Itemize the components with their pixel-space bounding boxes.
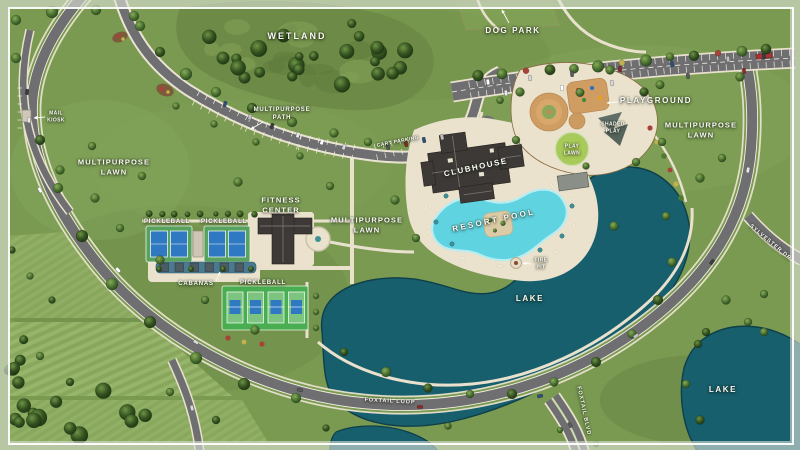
label-pickleball-lower: PICKLEBALL [240, 280, 286, 288]
label-foxtail-loop: FOXTAIL LOOP [364, 397, 415, 407]
site-plan: WETLAND DOG PARK MAILKIOSK MULTIPURPOSEP… [0, 0, 800, 450]
label-shaded-play: SHADEDPLAY [601, 122, 625, 135]
label-play-lawn: PLAYLAWN [564, 144, 580, 157]
label-cabanas: CABANAS [178, 281, 214, 289]
label-fitness-center: FITNESSCENTER [261, 195, 300, 215]
label-wetland: WETLAND [268, 31, 327, 43]
label-sylvester-dr: SYLVESTER DR [748, 223, 793, 262]
label-pickleball-upper-left: PICKLEBALL [144, 219, 190, 227]
label-mail-kiosk: MAILKIOSK [47, 111, 65, 124]
map-labels: WETLAND DOG PARK MAILKIOSK MULTIPURPOSEP… [0, 0, 800, 450]
label-resort-pool: RESORT POOL [452, 207, 537, 235]
label-dog-park: DOG PARK [485, 26, 540, 36]
label-clubhouse: CLUBHOUSE [443, 156, 509, 180]
label-fire-pit: FIREPIT [535, 258, 548, 271]
label-foxtail-blvd: FOXTAIL BLVD [574, 386, 591, 436]
label-pickleball-upper-right: PICKLEBALL [201, 219, 247, 227]
label-multipurpose-path: MULTIPURPOSEPATH [254, 107, 311, 123]
label-lake-bottom-right: LAKE [709, 385, 737, 395]
label-playground: PLAYGROUND [620, 96, 692, 106]
label-multipurpose-lawn-west: MULTIPURPOSELAWN [78, 157, 150, 177]
label-multipurpose-lawn-center: MULTIPURPOSELAWN [331, 215, 403, 235]
label-lake-center: LAKE [516, 294, 544, 304]
label-cart-parking: CART PARKING [376, 135, 419, 150]
label-multipurpose-lawn-east: MULTIPURPOSELAWN [665, 120, 737, 140]
